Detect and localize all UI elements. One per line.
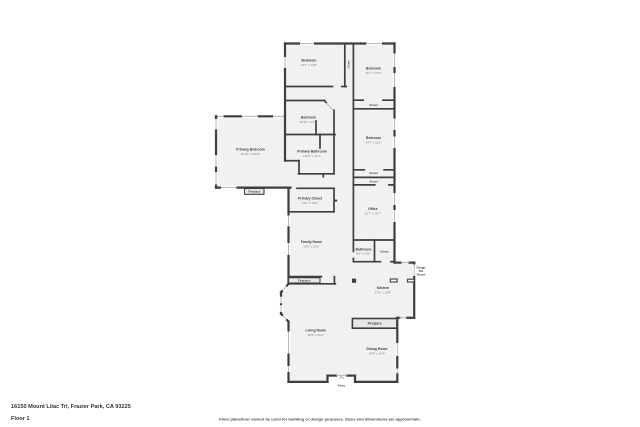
svg-text:Floor 1: Floor 1 bbox=[11, 416, 30, 422]
svg-text:Bedroom: Bedroom bbox=[366, 136, 381, 140]
svg-text:Living Room: Living Room bbox=[306, 328, 327, 332]
svg-text:Floor plans/tour cannot be use: Floor plans/tour cannot be used for buil… bbox=[219, 417, 421, 422]
svg-text:10'10" x 11'7": 10'10" x 11'7" bbox=[303, 154, 321, 158]
svg-text:Bedroom: Bedroom bbox=[301, 115, 316, 119]
svg-text:Shown: Shown bbox=[417, 272, 426, 276]
svg-text:Closet: Closet bbox=[369, 171, 378, 175]
svg-text:18'9" x 26'1": 18'9" x 26'1" bbox=[308, 333, 324, 337]
svg-text:14'7" x 12'6": 14'7" x 12'6" bbox=[301, 63, 317, 67]
svg-text:10'10" x 10'1": 10'10" x 10'1" bbox=[299, 120, 317, 124]
svg-text:Bedroom: Bedroom bbox=[366, 67, 381, 71]
svg-text:Entry: Entry bbox=[338, 383, 346, 387]
svg-text:Primary Bedroom: Primary Bedroom bbox=[236, 148, 264, 152]
svg-text:13'4" x 5'10": 13'4" x 5'10" bbox=[302, 201, 318, 205]
svg-text:Primary Closet: Primary Closet bbox=[298, 197, 323, 201]
svg-text:8'1" x 6'11": 8'1" x 6'11" bbox=[356, 252, 371, 256]
svg-text:Closet: Closet bbox=[369, 103, 378, 107]
svg-text:Dining Room: Dining Room bbox=[366, 347, 387, 351]
svg-text:14'7" x 11'1": 14'7" x 11'1" bbox=[365, 140, 381, 144]
svg-text:Kitchen: Kitchen bbox=[377, 286, 389, 290]
svg-text:16'8" x 13'4": 16'8" x 13'4" bbox=[369, 352, 385, 356]
svg-text:15'8" x 26'1": 15'8" x 26'1" bbox=[303, 244, 319, 248]
svg-text:Garage: Garage bbox=[416, 265, 426, 269]
svg-text:Fireplace: Fireplace bbox=[298, 278, 311, 282]
svg-text:17'6" x 12'8": 17'6" x 12'8" bbox=[375, 290, 391, 294]
svg-text:11'7" x 16'7": 11'7" x 16'7" bbox=[365, 211, 381, 215]
svg-text:Closet: Closet bbox=[346, 60, 350, 68]
svg-text:Closet: Closet bbox=[380, 250, 389, 254]
svg-text:Primary Bathroom: Primary Bathroom bbox=[297, 150, 327, 154]
svg-text:Fireplace: Fireplace bbox=[248, 189, 261, 193]
svg-text:16'10" x 16'11": 16'10" x 16'11" bbox=[241, 152, 261, 156]
svg-text:11'7" x 16'0": 11'7" x 16'0" bbox=[365, 71, 381, 75]
svg-text:16150 Mount Lilac Trl, Frazier: 16150 Mount Lilac Trl, Frazier Park, CA … bbox=[11, 404, 131, 410]
svg-text:Not: Not bbox=[419, 269, 424, 273]
svg-text:Fireplace: Fireplace bbox=[368, 322, 382, 326]
svg-text:Office: Office bbox=[368, 207, 378, 211]
svg-text:Family Room: Family Room bbox=[301, 240, 322, 244]
svg-text:Bedroom: Bedroom bbox=[302, 59, 317, 63]
svg-text:Closet: Closet bbox=[369, 179, 378, 183]
